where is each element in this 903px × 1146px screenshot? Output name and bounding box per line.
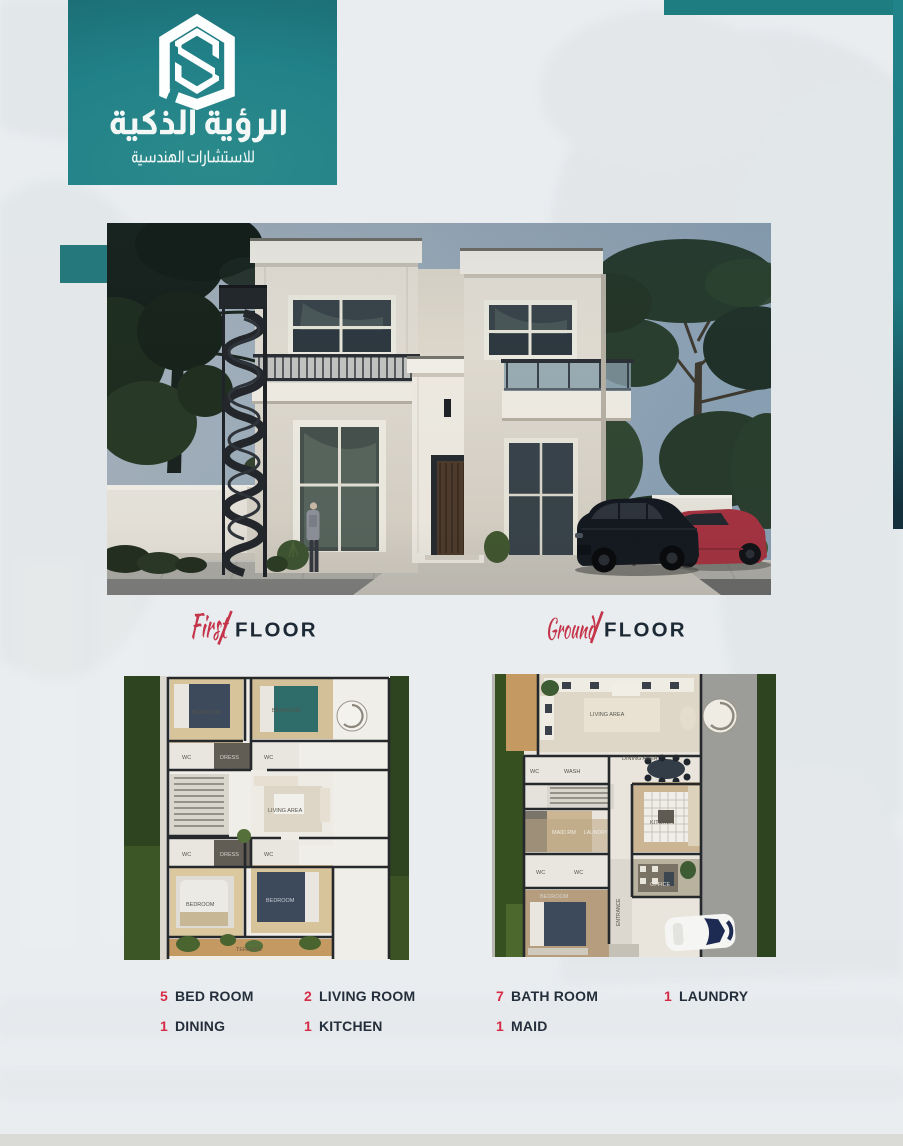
svg-text:WC: WC <box>182 755 191 761</box>
svg-text:FLOOR: FLOOR <box>604 619 687 642</box>
svg-text:LAUNDRY: LAUNDRY <box>584 830 608 836</box>
svg-text:MAID RM: MAID RM <box>552 830 576 836</box>
svg-text:LIVING AREA: LIVING AREA <box>590 712 625 718</box>
svg-text:OFFICE: OFFICE <box>650 882 670 888</box>
svg-text:BEDROOM: BEDROOM <box>540 894 569 900</box>
svg-text:TERRACE: TERRACE <box>236 947 263 953</box>
svg-text:WC: WC <box>574 870 583 876</box>
svg-text:FLOOR: FLOOR <box>235 619 318 642</box>
svg-text:BEDROOM: BEDROOM <box>272 708 301 714</box>
svg-text:WC: WC <box>536 870 545 876</box>
svg-text:LIVING AREA: LIVING AREA <box>268 808 303 814</box>
svg-text:BEDROOM: BEDROOM <box>192 710 221 716</box>
svg-text:ENTRANCE: ENTRANCE <box>616 898 622 926</box>
svg-text:WC: WC <box>264 852 273 858</box>
svg-text:BEDROOM: BEDROOM <box>186 902 215 908</box>
svg-text:WASH: WASH <box>564 769 580 775</box>
svg-text:DRESS: DRESS <box>220 755 239 761</box>
svg-text:KITCHEN: KITCHEN <box>650 820 674 826</box>
svg-text:DINING AREA: DINING AREA <box>622 756 658 762</box>
svg-text:BEDROOM: BEDROOM <box>266 898 295 904</box>
svg-text:WC: WC <box>264 755 273 761</box>
svg-text:WC: WC <box>530 769 539 775</box>
svg-text:WC: WC <box>182 852 191 858</box>
svg-text:DRESS: DRESS <box>220 852 239 858</box>
